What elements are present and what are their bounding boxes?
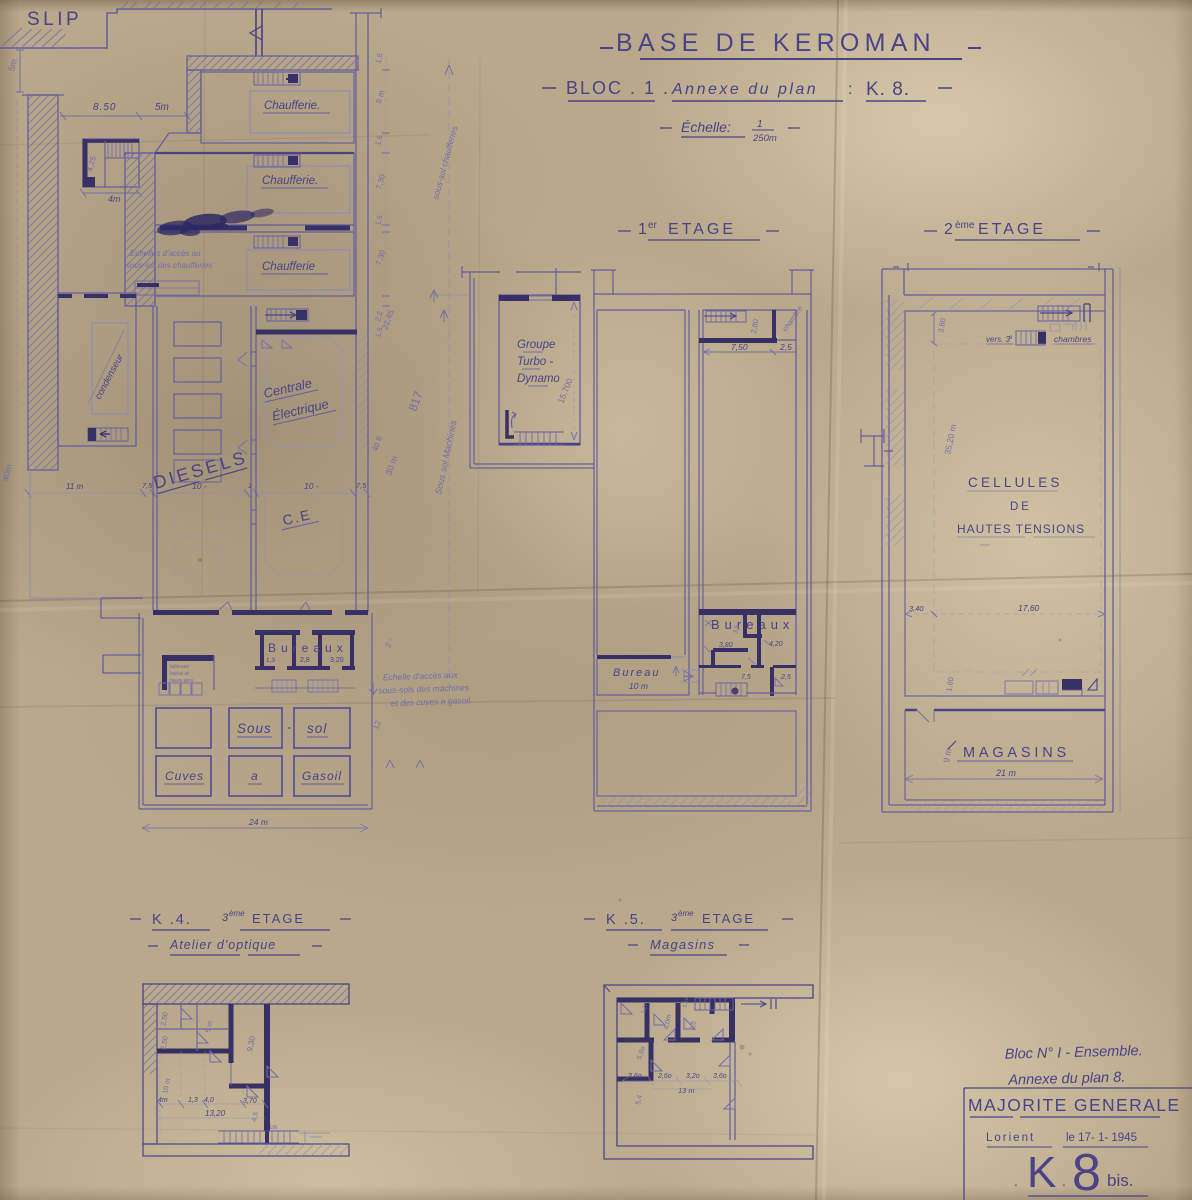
svg-text:2,50: 2,50 (160, 1036, 170, 1051)
svg-text:3,40: 3,40 (909, 604, 924, 613)
svg-text:2,50: 2,50 (160, 1012, 170, 1027)
svg-text:sous-sol des chaufferies: sous-sol des chaufferies (126, 261, 212, 270)
svg-text:.: . (1014, 1173, 1018, 1189)
svg-text:.: . (1062, 1173, 1066, 1189)
svg-text:10 m: 10 m (162, 1078, 172, 1095)
svg-text:ETAGE: ETAGE (252, 911, 305, 926)
svg-text:Électrique: Électrique (270, 396, 330, 424)
svg-text:4,0: 4,0 (204, 1097, 214, 1104)
svg-text:SLIP: SLIP (27, 9, 82, 30)
svg-text:Magasins: Magasins (650, 937, 715, 952)
svg-text:a: a (251, 769, 258, 783)
svg-text:Turbo -: Turbo - (517, 356, 553, 368)
svg-text:Groupe: Groupe (517, 339, 555, 351)
svg-text:3,80: 3,80 (719, 642, 733, 649)
svg-text:ème: ème (955, 220, 975, 231)
svg-text:3,2o: 3,2o (686, 1073, 700, 1080)
svg-text:2: 2 (944, 221, 955, 238)
svg-text:1,60: 1,60 (944, 676, 955, 692)
svg-text:4,5: 4,5 (251, 1111, 260, 1122)
svg-text:Chaufferie.: Chaufferie. (264, 100, 320, 112)
svg-text:2,80: 2,80 (749, 318, 760, 334)
svg-text:chambres: chambres (1054, 334, 1092, 344)
svg-text:250m: 250m (752, 133, 777, 144)
svg-text:10 -: 10 - (304, 481, 319, 491)
svg-text:1m: 1m (269, 1125, 277, 1131)
svg-text:2,8: 2,8 (300, 657, 310, 664)
svg-text:8: 8 (1072, 1144, 1101, 1200)
svg-text:8 m: 8 m (374, 89, 386, 105)
svg-text:vers. 3: vers. 3 (986, 335, 1011, 344)
svg-text:817: 817 (406, 389, 426, 413)
svg-text:Cuves: Cuves (165, 769, 204, 783)
svg-text:Sous: Sous (237, 721, 272, 736)
svg-text::: : (848, 81, 852, 98)
svg-text:13,20: 13,20 (205, 1109, 226, 1118)
svg-text:BASE DE KEROMAN: BASE DE KEROMAN (616, 29, 936, 57)
svg-text:HAUTES TENSIONS: HAUTES TENSIONS (957, 522, 1085, 536)
svg-text:4m: 4m (108, 194, 121, 204)
svg-text:5,8o: 5,8o (636, 1045, 647, 1060)
svg-text:Chaufferie: Chaufferie (262, 261, 315, 273)
svg-text:Dynamo: Dynamo (517, 373, 560, 385)
svg-text:Sous sol Machines: Sous sol Machines (433, 419, 459, 495)
svg-text:5m: 5m (155, 102, 169, 113)
svg-text:-: - (287, 720, 291, 734)
svg-text:e: e (1009, 335, 1013, 341)
svg-text:Atelier d'optique: Atelier d'optique (169, 938, 276, 952)
svg-text:basse et: basse et (170, 671, 190, 677)
svg-text:Bureaux: Bureaux (711, 617, 794, 632)
svg-text:ETAGE: ETAGE (668, 221, 736, 238)
svg-text:er: er (648, 220, 658, 231)
svg-text:1: 1 (757, 119, 763, 130)
svg-text:ETAGE: ETAGE (702, 911, 755, 926)
svg-text:Annexe du plan 8.: Annexe du plan 8. (1007, 1070, 1125, 1089)
svg-text:Échelle:: Échelle: (681, 119, 731, 135)
svg-text:2,5: 2,5 (689, 1020, 698, 1031)
svg-text:ETAGE: ETAGE (978, 221, 1046, 238)
svg-text:35,20 m: 35,20 m (942, 423, 958, 455)
svg-text:ème: ème (229, 909, 245, 918)
svg-text:Echelle d'accès aux: Echelle d'accès aux (383, 670, 459, 683)
svg-text:ème: ème (678, 909, 694, 918)
svg-text:DE: DE (1010, 501, 1032, 513)
svg-text:10 m: 10 m (629, 681, 648, 691)
svg-text:21 m: 21 m (995, 768, 1017, 778)
svg-text:BLOC . 1 .: BLOC . 1 . (566, 78, 670, 98)
svg-text:K .4.: K .4. (152, 912, 192, 928)
svg-text:bis.: bis. (1107, 1171, 1133, 1190)
svg-text:1,1o: 1,1o (682, 997, 690, 1009)
svg-text:5m: 5m (6, 58, 19, 73)
svg-text:Bureau: Bureau (613, 667, 660, 679)
svg-text:Lorient: Lorient (986, 1132, 1035, 1144)
svg-text:24 m: 24 m (248, 817, 268, 827)
svg-text:K: K (1027, 1148, 1056, 1197)
svg-text:9 m: 9 m (941, 748, 953, 764)
svg-text:1,3: 1,3 (266, 657, 275, 664)
svg-text:Echelles d'accès au: Echelles d'accès au (130, 249, 201, 258)
svg-text:3,6o: 3,6o (713, 1073, 727, 1080)
svg-text:1,5: 1,5 (373, 52, 384, 64)
svg-text:7,5: 7,5 (142, 481, 153, 490)
svg-text:Annexe du plan: Annexe du plan (671, 81, 818, 98)
svg-text:3: 3 (671, 912, 678, 924)
svg-text:7,5: 7,5 (356, 481, 367, 490)
svg-text:sol: sol (307, 721, 327, 736)
svg-text:11 m: 11 m (66, 482, 84, 491)
svg-text:4,0m: 4,0m (663, 1014, 673, 1031)
svg-text:8.50: 8.50 (93, 102, 116, 113)
svg-text:2,5: 2,5 (780, 674, 791, 681)
svg-text:MAJORITE GENERALE: MAJORITE GENERALE (968, 1095, 1180, 1115)
svg-text:3,6o: 3,6o (628, 1073, 642, 1080)
svg-text:22,45: 22,45 (380, 308, 395, 330)
svg-text:2,5: 2,5 (779, 342, 792, 352)
svg-text:4,20: 4,20 (769, 641, 783, 648)
svg-text:5 m: 5 m (205, 1020, 214, 1033)
svg-text:9,30: 9,30 (245, 1035, 257, 1053)
svg-text:C.E: C.E (281, 506, 313, 528)
svg-text:7,5: 7,5 (741, 674, 751, 681)
svg-text:2,6o: 2,6o (657, 1073, 672, 1080)
svg-text:et des cuves a gasoil.: et des cuves a gasoil. (391, 695, 473, 708)
svg-text:K. 8.: K. 8. (866, 79, 910, 100)
svg-text:CELLULES: CELLULES (968, 475, 1063, 490)
svg-text:Chaufferie.: Chaufferie. (262, 175, 318, 187)
svg-text:chambre: chambre (780, 304, 804, 333)
svg-text:12: 12 (371, 719, 383, 731)
svg-text:Bureaux: Bureaux (268, 641, 348, 655)
svg-text:Gasoil: Gasoil (302, 769, 342, 783)
svg-text:7,30: 7,30 (374, 173, 387, 191)
svg-text:13 m: 13 m (678, 1086, 695, 1095)
svg-text:Bloc N° I - Ensemble.: Bloc N° I - Ensemble. (1004, 1043, 1142, 1063)
svg-text:1,3: 1,3 (188, 1097, 198, 1104)
svg-text:7,50: 7,50 (731, 342, 748, 352)
svg-text:3,60: 3,60 (936, 317, 947, 333)
svg-text:17,60: 17,60 (1018, 603, 1040, 613)
svg-text:le 17- 1- 1945: le 17- 1- 1945 (1066, 1132, 1137, 1144)
svg-text:K .5.: K .5. (606, 912, 646, 928)
svg-text:5,4: 5,4 (635, 1094, 644, 1105)
svg-text:40m: 40m (0, 463, 14, 483)
svg-text:tableaux: tableaux (170, 664, 189, 670)
svg-text:3,20: 3,20 (330, 657, 344, 664)
svg-text:sous-sol chaufferies: sous-sol chaufferies (430, 124, 459, 200)
svg-text:3,70: 3,70 (243, 1098, 257, 1105)
svg-text:MAGASINS: MAGASINS (963, 745, 1070, 761)
svg-text:sous-sols des machines: sous-sols des machines (378, 682, 470, 695)
svg-text:30 m: 30 m (383, 454, 399, 476)
svg-text:7,30: 7,30 (374, 249, 387, 267)
svg-text:40 8: 40 8 (370, 434, 384, 452)
svg-text:3: 3 (222, 912, 229, 924)
svg-text:2 -: 2 - (383, 637, 395, 649)
